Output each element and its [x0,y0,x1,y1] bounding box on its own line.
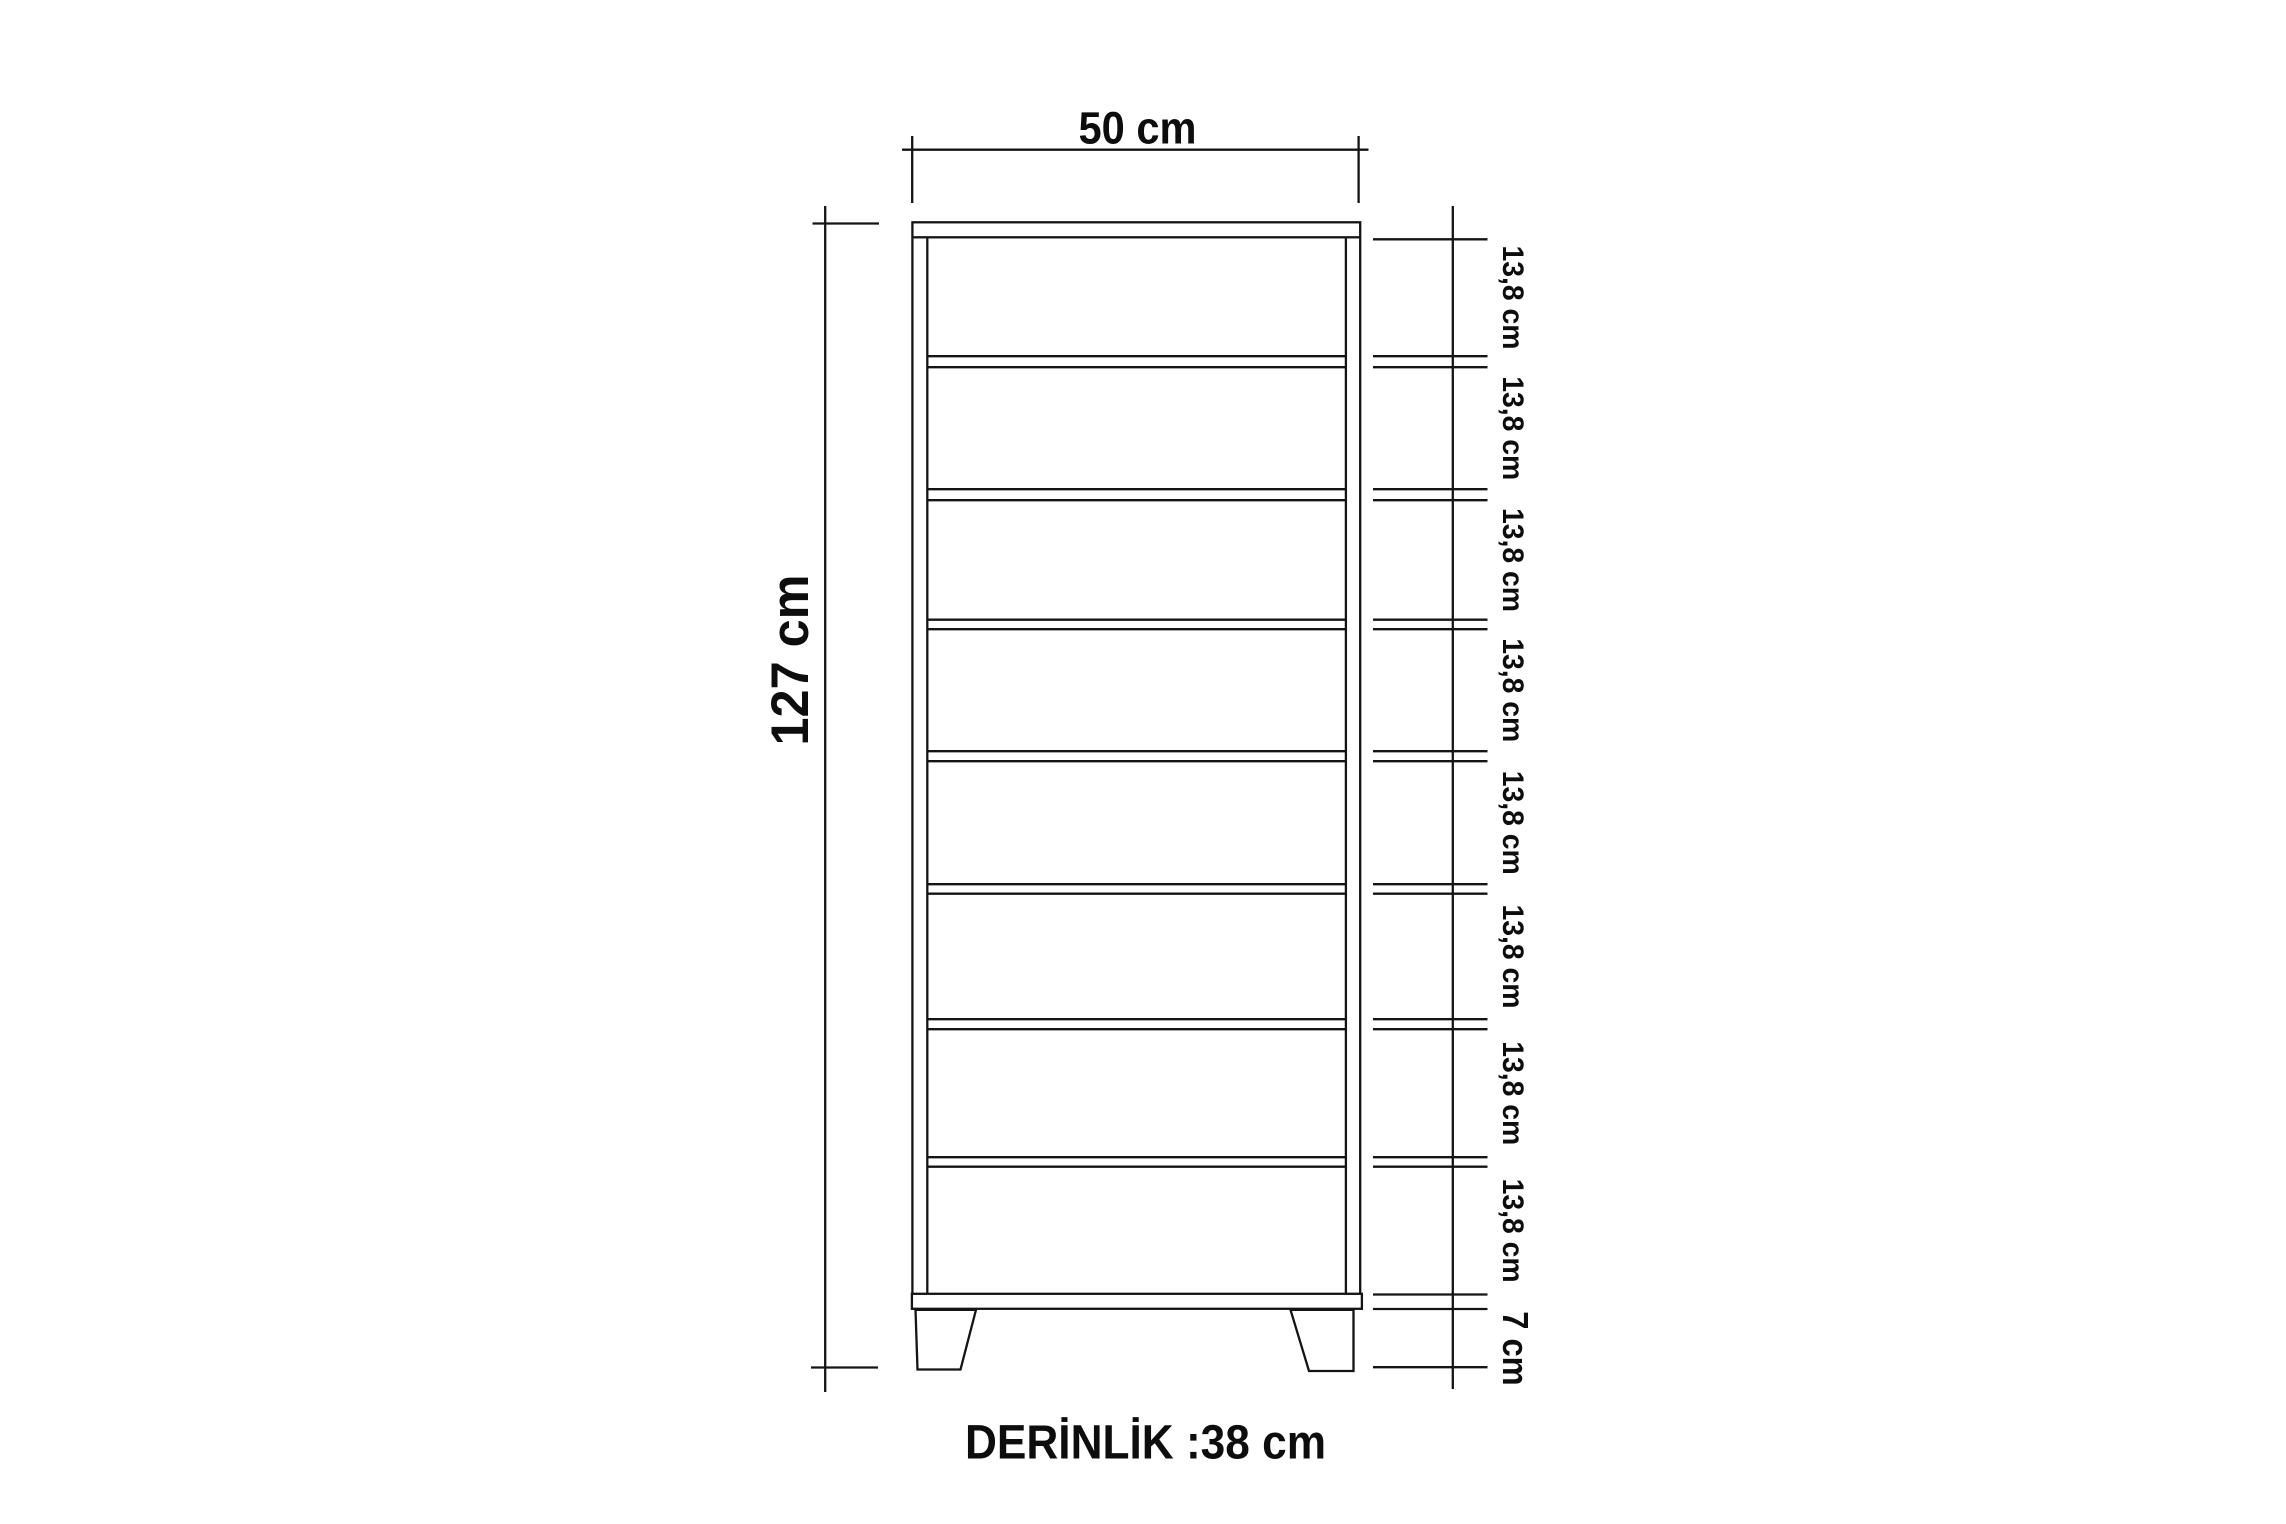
svg-text:13,8 cm: 13,8 cm [1496,1041,1529,1145]
svg-text:13,8 cm: 13,8 cm [1496,508,1529,612]
svg-text:50 cm: 50 cm [1079,103,1197,154]
svg-text:13,8 cm: 13,8 cm [1496,376,1529,480]
svg-text:DERİNLİK :38 cm: DERİNLİK :38 cm [965,1417,1326,1470]
svg-text:13,8 cm: 13,8 cm [1496,1179,1529,1283]
svg-text:7 cm: 7 cm [1495,1311,1536,1386]
svg-text:13,8 cm: 13,8 cm [1496,771,1529,875]
svg-text:13,8 cm: 13,8 cm [1496,905,1529,1009]
svg-text:13,8 cm: 13,8 cm [1496,638,1529,742]
svg-text:13,8 cm: 13,8 cm [1496,246,1529,350]
svg-text:127 cm: 127 cm [761,575,820,746]
